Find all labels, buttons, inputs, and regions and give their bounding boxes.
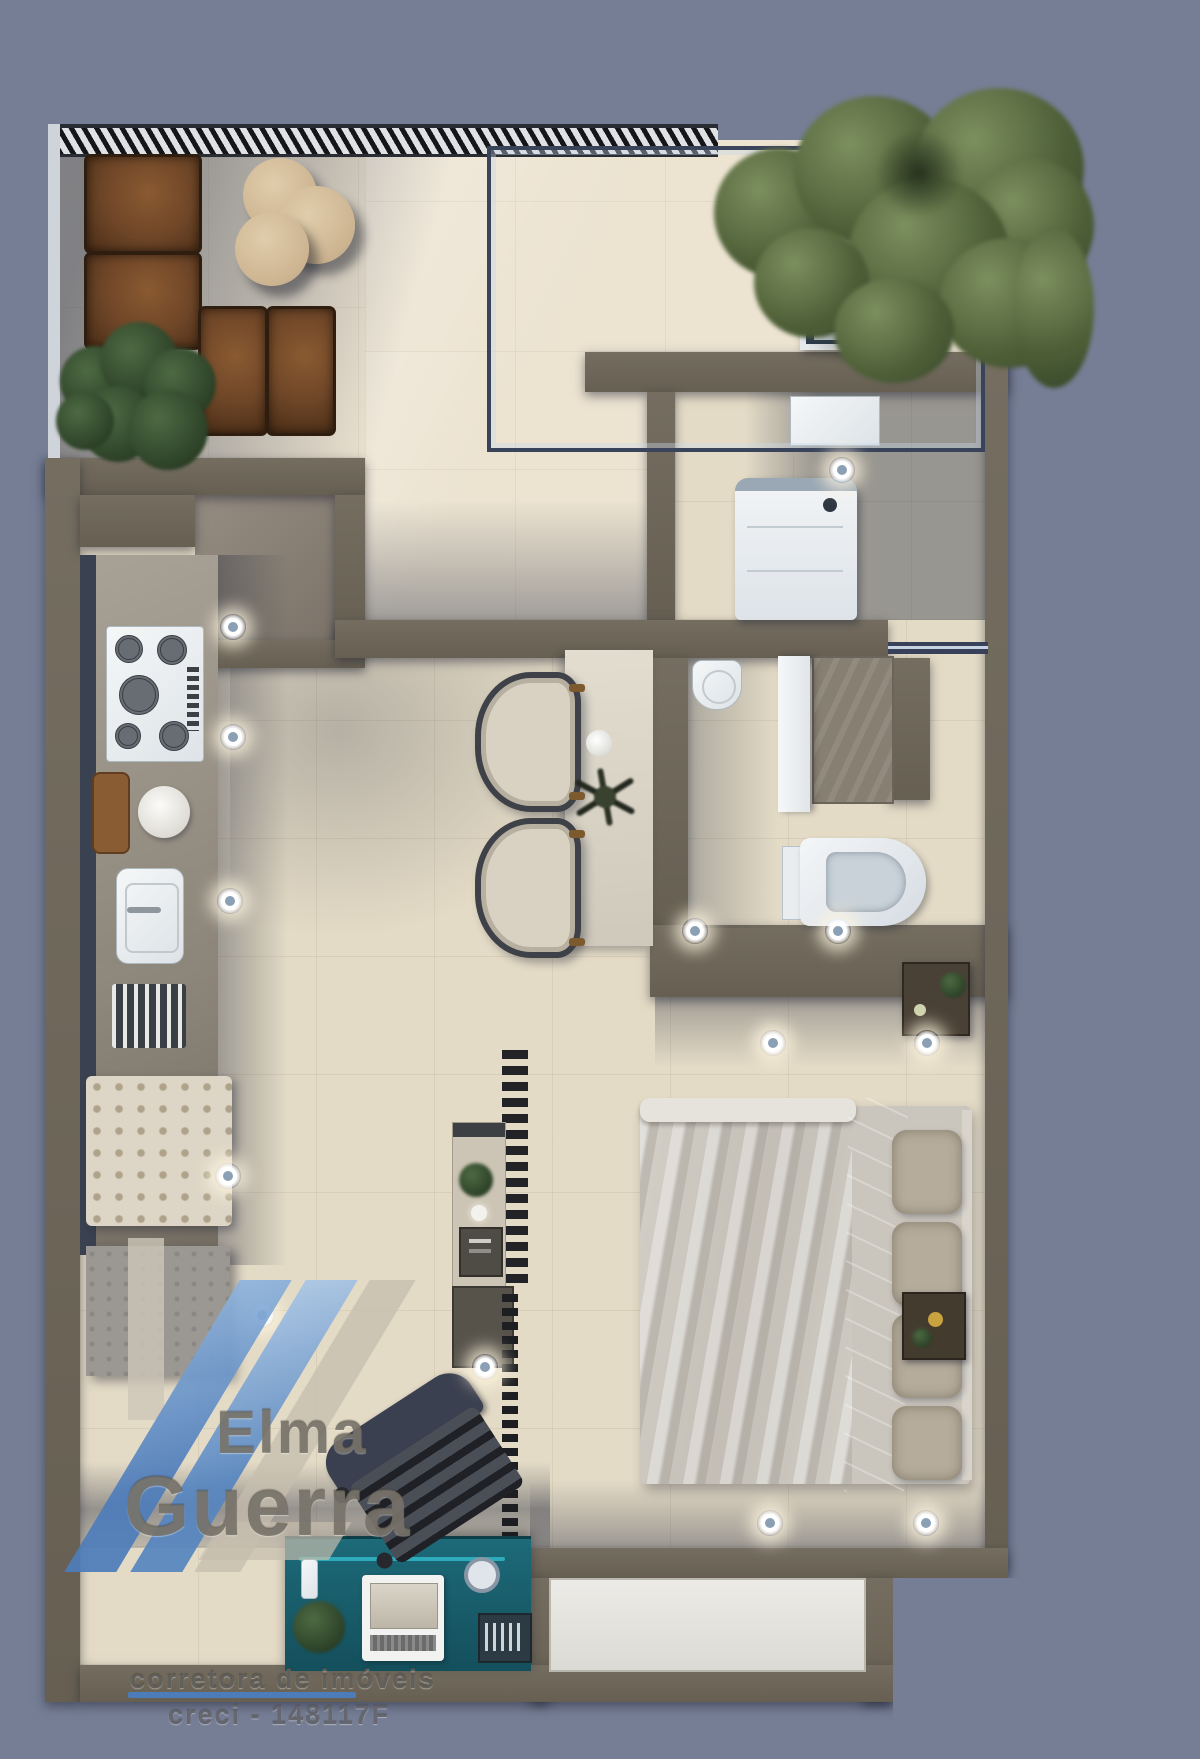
toilet [782,838,926,926]
sink-basin [125,883,179,953]
bed-pillow [892,1130,962,1214]
floor-plan-render: Elma Guerra corretora de imóveis creci -… [0,0,1200,1759]
cooktop [106,626,204,762]
toilet-bowl [800,838,926,926]
toilet-seat [826,852,906,912]
washer-knob [823,498,837,512]
table-bowl [586,730,612,756]
laptop-keyboard [370,1635,436,1651]
cutting-board [92,772,130,854]
wardrobe [549,1578,866,1672]
glass-partition [888,642,988,654]
balcony-sofa-cushion [266,306,336,436]
basin-bowl [702,670,736,704]
watermark-brand-bottom: Guerra [124,1458,411,1555]
desk-keyboard-tray [478,1613,532,1663]
sideboard-box [459,1227,503,1277]
glass-partition-pane [888,646,988,649]
watermark-tagline: corretora de imóveis [130,1664,436,1695]
counter-bowl [138,786,190,838]
washer-door-line [747,570,843,572]
bathroom-basin [692,660,742,710]
balcony-plant [52,318,222,473]
tray-gold-decor [928,1312,943,1327]
clover-side-table [225,158,355,283]
media-sideboard [452,1122,506,1288]
sideboard-decor [471,1205,487,1221]
nightstand [902,962,970,1036]
wall-entry-block [80,495,195,547]
washer-door-line [747,526,843,528]
wall-shower-right [888,658,930,800]
sideboard-plant [459,1163,493,1197]
desk-laptop [362,1575,444,1661]
desk-clock [464,1557,500,1593]
dish-rack [112,984,186,1048]
nightstand-plant [940,972,966,998]
dining-chair [475,818,581,958]
washing-machine [735,478,857,620]
balcony-tree [714,88,1094,398]
wall-bedroom-bottom [530,1548,1008,1578]
wall-bathroom-left [650,658,688,928]
bed-duvet-fold [640,1098,856,1122]
watermark-license: creci - 148117F [168,1700,390,1731]
cooktop-knobs [187,667,199,731]
kitchen-sink [116,868,184,964]
bed-duvet [640,1106,852,1484]
table-centerpiece-plant [566,758,644,838]
divider-slat-panel [502,1288,518,1540]
patterned-ottoman [86,1076,232,1226]
desk-plant [293,1601,345,1653]
shower-floor [812,656,894,804]
watermark-brand-top: Elma [216,1398,367,1467]
sink-faucet [127,907,161,913]
clover-table-top [235,212,309,286]
laptop-screen [370,1583,438,1629]
bed-pillow [892,1406,962,1480]
logo-gray-bar [128,1238,164,1420]
watermark-rule [128,1692,356,1698]
washer-top-panel [735,478,857,491]
balcony-sofa-cushion [84,154,202,254]
bed-tray [902,1292,966,1360]
wall-outer-right [985,352,1008,1570]
background-notch [893,1578,1200,1759]
shower-glass-panel [778,656,810,812]
